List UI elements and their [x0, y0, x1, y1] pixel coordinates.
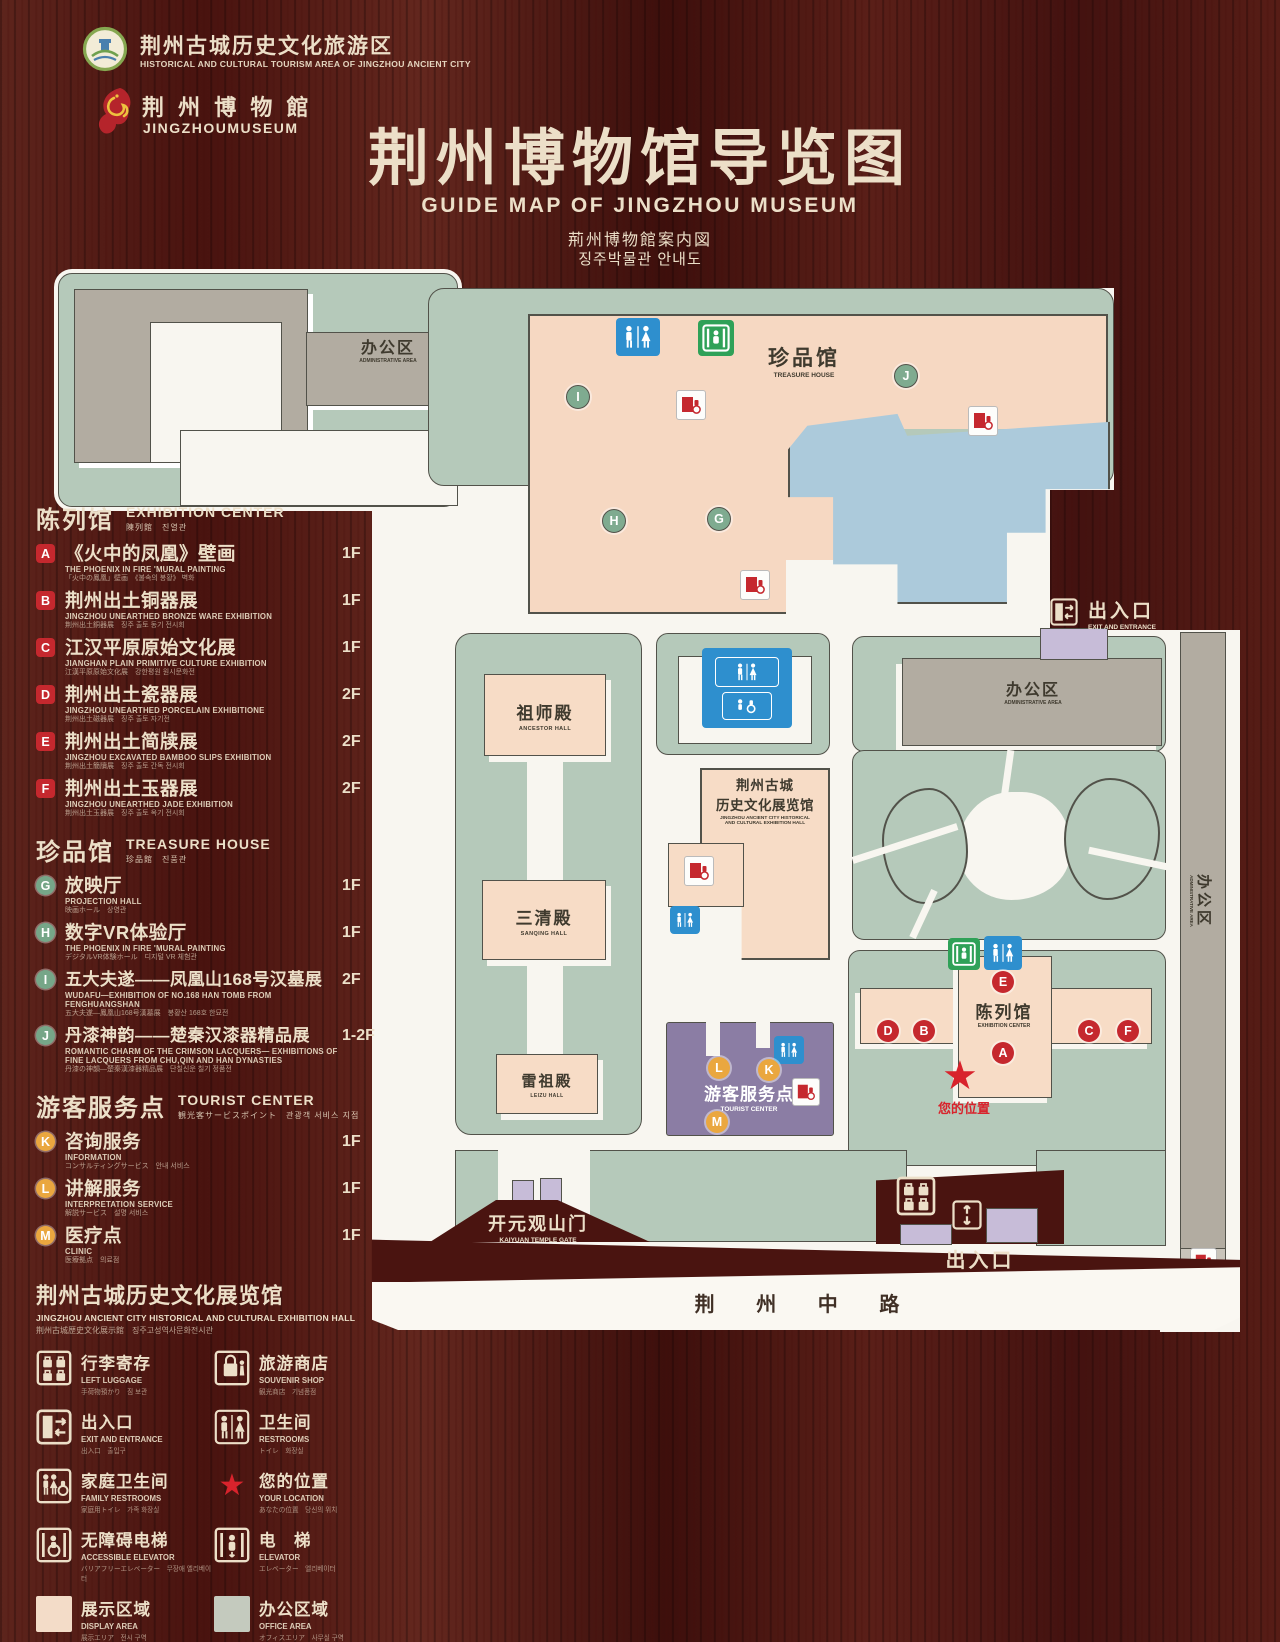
- floor-label: 2F: [342, 684, 380, 724]
- admin-strip-label-zh: 办公区: [1195, 874, 1212, 928]
- sanqing-hall-label: 三清殿: [516, 904, 573, 929]
- symbol-sub: 出入口 출입구: [81, 1445, 163, 1455]
- legend-symbol-restrooms: 卫生间 RESTROOMS トイレ 화장실: [214, 1409, 380, 1455]
- badge-i: I: [36, 970, 55, 989]
- admin-right-label-zh: 办公区: [958, 676, 1108, 700]
- item-sub: 丹漆の神韻—楚秦漢漆器精品展 단칠신운 칠기 정품전: [65, 1066, 342, 1074]
- item-en: JINGZHOU UNEARTHED BRONZE WARE EXHIBITIO…: [65, 612, 342, 621]
- item-en: WUDAFU—EXHIBITION OF NO.168 HAN TOMB FRO…: [65, 991, 342, 1009]
- legend-item-c: C 江汉平原原始文化展 JIANGHAN PLAIN PRIMITIVE CUL…: [36, 637, 380, 677]
- section-title-sub: 観光客サービスポイント 관광객 서비스 지점: [178, 1110, 359, 1121]
- floor-label: 1F: [342, 637, 380, 677]
- item-sub: 五大夫遂—鳳凰山168号漢墓展 봉황산 168호 한묘전: [65, 1010, 342, 1018]
- symbol-zh: 出入口: [81, 1409, 163, 1433]
- legend-symbol-elevator: 电 梯 ELEVATOR エレベーター 엘리베이터: [214, 1527, 380, 1583]
- elevator-icon: [214, 1527, 250, 1563]
- item-sub: 映画ホール 상영관: [65, 907, 342, 915]
- road-label: 荆 州 中 路: [372, 1288, 1240, 1317]
- building-small-purple: [986, 1208, 1038, 1243]
- legend-section-tourist-center: 游客服务点 TOURIST CENTER 観光客サービスポイント 관광객 서비스…: [36, 1088, 380, 1123]
- exit-entrance-icon: [1050, 598, 1078, 626]
- symbol-sub: エレベーター 엘리베이터: [259, 1563, 336, 1573]
- map-marker-G: G: [707, 507, 731, 531]
- note-zh: 荆州古城历史文化展览馆: [36, 1279, 380, 1310]
- note-sub: 荆州古城歴史文化展示館 징주고성역사문화전시관: [36, 1325, 380, 1336]
- office-area-swatch: [214, 1596, 250, 1632]
- badge-f: F: [36, 779, 55, 798]
- symbol-en: FAMILY RESTROOMS: [81, 1494, 169, 1503]
- item-sub: デジタルVR体験ホール 디지털 VR 체험관: [65, 954, 342, 962]
- map-marker-K: K: [758, 1059, 780, 1081]
- tourist-notch: [706, 1022, 720, 1056]
- exit-entrance-icon: [952, 1200, 982, 1230]
- symbol-sub: あなたの位置 당신의 위치: [259, 1504, 337, 1514]
- floor-label: 1F: [342, 543, 380, 583]
- history-hall-label-zh2: 历史文化展览馆: [698, 794, 832, 814]
- legend-symbol-family-restrooms: 家庭卫生间 FAMILY RESTROOMS 家庭用トイレ 가족 화장실: [36, 1468, 214, 1514]
- floor-label: 1F: [342, 1225, 380, 1265]
- kaiyuan-gate-label-en: KAIYUAN TEMPLE GATE: [448, 1237, 628, 1244]
- section-title-zh: 陈列馆: [36, 500, 114, 535]
- symbol-zh: 旅游商店: [259, 1350, 329, 1374]
- page-subtitle-en: GUIDE MAP OF JINGZHOU MUSEUM: [250, 194, 1030, 218]
- page-subtitle-ko: 징주박물관 안내도: [250, 248, 1030, 269]
- floor-label: 1F: [342, 1131, 380, 1171]
- floor-label: 2F: [342, 778, 380, 818]
- legend-item-f: F 荆州出土玉器展 JINGZHOU UNEARTHED JADE EXHIBI…: [36, 778, 380, 818]
- item-sub: 「火中の鳳凰」壁画 《불속의 봉황》 벽화: [65, 575, 342, 583]
- legend-item-m: M 医疗点 CLINIC 医療拠点 의료점 1F: [36, 1225, 380, 1265]
- your-location-star: ★: [942, 1056, 978, 1096]
- legend-symbol-office-area: 办公区域 OFFICE AREA オフィスエリア 사무실 구역: [214, 1596, 380, 1642]
- symbol-zh: 家庭卫生间: [81, 1468, 169, 1492]
- leizu-hall-label-en: LEIZU HALL: [530, 1093, 563, 1099]
- item-sub: 医療拠点 의료점: [65, 1257, 342, 1265]
- item-sub: 荆州出土磁器展 징주 출토 자기전: [65, 716, 342, 724]
- map-marker-J: J: [894, 364, 918, 388]
- item-sub: 江漢平原原始文化展 강한평원 원시문화전: [65, 669, 342, 677]
- luggage-icon: [896, 1176, 936, 1216]
- history-hall-label: 荆州古城 历史文化展览馆 JINGZHOU ANCIENT CITY HISTO…: [698, 774, 832, 826]
- item-en: JINGZHOU UNEARTHED JADE EXHIBITION: [65, 800, 342, 809]
- admin-right-label-en: ADMINISTRATIVE AREA: [958, 700, 1108, 706]
- item-zh: 荆州出土铜器展: [65, 590, 342, 611]
- item-zh: 医疗点: [65, 1225, 342, 1246]
- item-zh: 《火中的凤凰》壁画: [65, 543, 342, 564]
- floor-label: 2F: [342, 731, 380, 771]
- section-title-zh: 游客服务点: [36, 1088, 166, 1123]
- symbol-zh: 电 梯: [259, 1527, 336, 1551]
- legend-symbol-accessible-elevator: 无障碍电梯 ACCESSIBLE ELEVATOR バリアフリーエレベーター 무…: [36, 1527, 214, 1583]
- legend-sidebar: 陈列馆 EXHIBITION CENTER 陳列館 진열관 A 《火中的凤凰》壁…: [36, 500, 380, 1642]
- your-location-star: ★: [214, 1468, 250, 1504]
- exit-top-label: 出入口 EXIT AND ENTRANCE: [1088, 596, 1238, 631]
- item-en: INFORMATION: [65, 1153, 342, 1162]
- symbol-zh: 您的位置: [259, 1468, 337, 1492]
- floor-label: 1F: [342, 1178, 380, 1218]
- item-en: INTERPRETATION SERVICE: [65, 1200, 342, 1209]
- item-zh: 讲解服务: [65, 1178, 342, 1199]
- building-leizu-hall: 雷祖殿 LEIZU HALL: [496, 1054, 598, 1114]
- legend-item-i: I 五大夫遂——凤凰山168号汉墓展 WUDAFU—EXHIBITION OF …: [36, 969, 380, 1018]
- leizu-hall-label: 雷祖殿: [521, 1070, 572, 1091]
- symbol-en: SOUVENIR SHOP: [259, 1376, 329, 1385]
- treasure-house-label-en: TREASURE HOUSE: [742, 372, 866, 379]
- restroom-icon: [214, 1409, 250, 1445]
- floor-label: 2F: [342, 969, 380, 1018]
- section-title-en: TREASURE HOUSE: [126, 836, 271, 852]
- family-restroom-icon: [702, 648, 792, 728]
- legend-item-k: K 咨询服务 INFORMATION コンサルティングサービス 안내 서비스 1…: [36, 1131, 380, 1171]
- floor-label: 1F: [342, 875, 380, 915]
- your-location-label: 您的位置: [926, 1098, 1002, 1117]
- ancestor-hall-label-en: ANCESTOR HALL: [519, 726, 571, 732]
- section-title-en: TOURIST CENTER: [178, 1092, 359, 1108]
- item-en: JIANGHAN PLAIN PRIMITIVE CULTURE EXHIBIT…: [65, 659, 342, 668]
- display-area-swatch: [36, 1596, 72, 1632]
- symbol-sub: 手荷物預かり 짐 보관: [81, 1386, 151, 1396]
- legend-item-d: D 荆州出土瓷器展 JINGZHOU UNEARTHED PORCELAIN E…: [36, 684, 380, 724]
- tourism-area-title: 荆州古城历史文化旅游区: [140, 30, 393, 60]
- restroom-icon: [984, 936, 1022, 970]
- badge-g: G: [36, 876, 55, 895]
- exhibition-center-label-zh: 陈列馆: [946, 998, 1062, 1023]
- item-zh: 荆州出土玉器展: [65, 778, 342, 799]
- map-marker-D: D: [877, 1020, 899, 1042]
- souvenir-shop-icon: [214, 1350, 250, 1386]
- exhibition-hall-note: 荆州古城历史文化展览馆 JINGZHOU ANCIENT CITY HISTOR…: [36, 1279, 380, 1336]
- accessible-elevator-icon: [968, 406, 998, 436]
- luggage-icon: [36, 1350, 72, 1386]
- elevator-icon: [698, 320, 734, 356]
- symbol-sub: 観光商店 기념품점: [259, 1386, 329, 1396]
- family-restroom-icon: [36, 1468, 72, 1504]
- symbol-en: LEFT LUGGAGE: [81, 1376, 151, 1385]
- admin-strip-label: 办公区 ADMINISTRATIVE AREA: [1189, 841, 1215, 961]
- item-en: ROMANTIC CHARM OF THE CRIMSON LACQUERS— …: [65, 1047, 342, 1065]
- legend-item-b: B 荆州出土铜器展 JINGZHOU UNEARTHED BRONZE WARE…: [36, 590, 380, 630]
- symbol-sub: トイレ 화장실: [259, 1445, 312, 1455]
- legend-item-a: A 《火中的凤凰》壁画 THE PHOENIX IN FIRE 'MURAL P…: [36, 543, 380, 583]
- item-sub: 荆州出土簡牘展 징주 출토 간독 전시회: [65, 763, 342, 771]
- exhibition-center-label-en: EXHIBITION CENTER: [946, 1023, 1062, 1029]
- item-zh: 荆州出土简牍展: [65, 731, 342, 752]
- item-en: THE PHOENIX IN FIRE 'MURAL PAINTING: [65, 565, 342, 574]
- history-hall-label-en2: AND CULTURAL EXHIBITION HALL: [698, 821, 832, 826]
- item-en: THE PHOENIX IN FIRE 'MURAL PAINTING: [65, 944, 342, 953]
- exhibition-center-label: 陈列馆 EXHIBITION CENTER: [946, 998, 1062, 1029]
- corridor: [527, 752, 563, 888]
- item-sub: 荆州出土銅器展 징주 출토 동기 전시회: [65, 622, 342, 630]
- legend-item-h: H 数字VR体验厅 THE PHOENIX IN FIRE 'MURAL PAI…: [36, 922, 380, 962]
- legend-symbol-display-area: 展示区域 DISPLAY AREA 展示エリア 전시 구역: [36, 1596, 214, 1642]
- map-marker-F: F: [1117, 1020, 1139, 1042]
- symbol-en: ACCESSIBLE ELEVATOR: [81, 1553, 214, 1562]
- legend-symbol-your-location: ★ 您的位置 YOUR LOCATION あなたの位置 당신의 위치: [214, 1468, 380, 1514]
- map-marker-E: E: [992, 971, 1014, 993]
- building-small-purple: [1040, 628, 1108, 660]
- exit-entrance-icon: [36, 1409, 72, 1445]
- building-sanqing-hall: 三清殿 SANQING HALL: [482, 880, 606, 960]
- section-title-en: EXHIBITION CENTER: [126, 504, 285, 520]
- badge-l: L: [36, 1179, 55, 1198]
- tourism-area-logo: [82, 26, 128, 72]
- restroom-icon: [774, 1036, 804, 1064]
- symbol-en: DISPLAY AREA: [81, 1622, 151, 1631]
- ancestor-hall-label: 祖师殿: [517, 699, 574, 724]
- map-marker-A: A: [992, 1042, 1014, 1064]
- map-marker-H: H: [602, 509, 626, 533]
- item-zh: 数字VR体验厅: [65, 922, 342, 943]
- admin-right-label: 办公区 ADMINISTRATIVE AREA: [958, 676, 1108, 706]
- page-subtitle-ja: 荊州博物館案内図: [250, 226, 1030, 250]
- item-zh: 五大夫遂——凤凰山168号汉墓展: [65, 969, 342, 990]
- exit-bottom-label-zh: 出入口: [912, 1244, 1048, 1273]
- legend-symbol-left-luggage: 行李寄存 LEFT LUGGAGE 手荷物預かり 짐 보관: [36, 1350, 214, 1396]
- symbol-en: OFFICE AREA: [259, 1622, 344, 1631]
- symbol-sub: バリアフリーエレベーター 무장애 엘리베이터: [81, 1563, 214, 1583]
- legend-item-g: G 放映厅 PROJECTION HALL 映画ホール 상영관 1F: [36, 875, 380, 915]
- item-en: PROJECTION HALL: [65, 897, 342, 906]
- note-en: JINGZHOU ANCIENT CITY HISTORICAL AND CUL…: [36, 1313, 380, 1323]
- badge-m: M: [36, 1226, 55, 1245]
- tourism-area-subtitle: HISTORICAL AND CULTURAL TOURISM AREA OF …: [140, 59, 471, 69]
- item-en: JINGZHOU UNEARTHED PORCELAIN EXHIBITIONE: [65, 706, 342, 715]
- item-zh: 丹漆神韵——楚秦汉漆器精品展: [65, 1025, 342, 1046]
- item-zh: 放映厅: [65, 875, 342, 896]
- admin-plaza: [180, 430, 458, 506]
- symbol-zh: 办公区域: [259, 1596, 344, 1620]
- badge-d: D: [36, 685, 55, 704]
- accessible-elevator-icon: [684, 856, 714, 886]
- item-zh: 荆州出土瓷器展: [65, 684, 342, 705]
- symbol-sub: 家庭用トイレ 가족 화장실: [81, 1504, 169, 1514]
- map-marker-I: I: [566, 385, 590, 409]
- badge-b: B: [36, 591, 55, 610]
- treasure-house-label-zh: 珍品馆: [742, 342, 866, 372]
- building-ancestor-hall: 祖师殿 ANCESTOR HALL: [484, 674, 606, 756]
- building-small-purple: [900, 1224, 952, 1245]
- restroom-icon: [715, 657, 779, 687]
- kaiyuan-gate-label-zh: 开元观山门: [448, 1210, 628, 1236]
- sanqing-hall-label-en: SANQING HALL: [521, 931, 568, 937]
- garden-pond: [958, 792, 1070, 900]
- restroom-icon: [670, 906, 700, 934]
- tourist-center-label-en: TOURIST CENTER: [666, 1106, 832, 1113]
- badge-h: H: [36, 923, 55, 942]
- item-sub: コンサルティングサービス 안내 서비스: [65, 1163, 342, 1171]
- museum-logo: [90, 84, 134, 136]
- symbol-zh: 行李寄存: [81, 1350, 151, 1374]
- exit-top-label-zh: 出入口: [1088, 596, 1238, 623]
- tourist-notch: [756, 1022, 770, 1048]
- symbol-zh: 展示区域: [81, 1596, 151, 1620]
- item-zh: 咨询服务: [65, 1131, 342, 1152]
- badge-c: C: [36, 638, 55, 657]
- exit-top-label-en: EXIT AND ENTRANCE: [1088, 624, 1238, 631]
- elevator-icon: [948, 938, 980, 970]
- symbol-en: EXIT AND ENTRANCE: [81, 1435, 163, 1444]
- section-title-sub: 珍品館 진품관: [126, 854, 271, 865]
- map-marker-C: C: [1078, 1020, 1100, 1042]
- legend-item-l: L 讲解服务 INTERPRETATION SERVICE 解説サービス 설명 …: [36, 1178, 380, 1218]
- accessible-elevator-icon: [36, 1527, 72, 1563]
- item-sub: 荆州出土玉器展 징주 출토 옥기 전시회: [65, 810, 342, 818]
- wheelchair-icon: [722, 692, 772, 720]
- page-title: 荆州博物馆导览图: [250, 108, 1030, 197]
- item-sub: 解説サービス 설명 서비스: [65, 1210, 342, 1218]
- item-zh: 江汉平原原始文化展: [65, 637, 342, 658]
- treasure-house-label: 珍品馆 TREASURE HOUSE: [742, 342, 866, 379]
- map-marker-L: L: [708, 1057, 730, 1079]
- admin-strip-label-en: ADMINISTRATIVE AREA: [1189, 841, 1194, 961]
- legend-symbol-exit-entrance: 出入口 EXIT AND ENTRANCE 出入口 출입구: [36, 1409, 214, 1455]
- legend-item-j: J 丹漆神韵——楚秦汉漆器精品展 ROMANTIC CHARM OF THE C…: [36, 1025, 380, 1074]
- map-marker-B: B: [913, 1020, 935, 1042]
- restroom-icon: [616, 318, 660, 356]
- legend-symbol-souvenir-shop: 旅游商店 SOUVENIR SHOP 観光商店 기념품점: [214, 1350, 380, 1396]
- kaiyuan-gate-label: 开元观山门 KAIYUAN TEMPLE GATE: [448, 1210, 628, 1244]
- corridor: [527, 956, 563, 1056]
- legend-section-exhibition-center: 陈列馆 EXHIBITION CENTER 陳列館 진열관: [36, 500, 380, 535]
- symbol-sub: 展示エリア 전시 구역: [81, 1632, 151, 1642]
- floor-label: 1F: [342, 590, 380, 630]
- floor-label: 1F: [342, 922, 380, 962]
- symbols-legend: 行李寄存 LEFT LUGGAGE 手荷物預かり 짐 보관 旅游商店 SOUVE…: [36, 1350, 380, 1642]
- floor-label: 1-2F: [342, 1025, 380, 1074]
- legend-section-treasure-house: 珍品馆 TREASURE HOUSE 珍品館 진품관: [36, 832, 380, 867]
- museum-guide-map-poster: { "header": { "tourism_logo": { "title":…: [0, 0, 1280, 1451]
- symbol-en: RESTROOMS: [259, 1435, 312, 1444]
- item-en: CLINIC: [65, 1247, 342, 1256]
- accessible-elevator-icon: [676, 390, 706, 420]
- badge-a: A: [36, 544, 55, 563]
- map-marker-M: M: [706, 1111, 728, 1133]
- symbol-en: ELEVATOR: [259, 1553, 336, 1562]
- accessible-elevator-icon: [792, 1078, 820, 1106]
- item-en: JINGZHOU EXCAVATED BAMBOO SLIPS EXHIBITI…: [65, 753, 342, 762]
- badge-e: E: [36, 732, 55, 751]
- symbol-sub: オフィスエリア 사무실 구역: [259, 1632, 344, 1642]
- badge-k: K: [36, 1132, 55, 1151]
- symbol-zh: 卫生间: [259, 1409, 312, 1433]
- badge-j: J: [36, 1026, 55, 1045]
- section-title-sub: 陳列館 진열관: [126, 522, 285, 533]
- accessible-elevator-icon: [740, 570, 770, 600]
- symbol-zh: 无障碍电梯: [81, 1527, 214, 1551]
- history-hall-label-zh1: 荆州古城: [698, 774, 832, 794]
- legend-item-e: E 荆州出土简牍展 JINGZHOU EXCAVATED BAMBOO SLIP…: [36, 731, 380, 771]
- symbol-en: YOUR LOCATION: [259, 1494, 337, 1503]
- section-title-zh: 珍品馆: [36, 832, 114, 867]
